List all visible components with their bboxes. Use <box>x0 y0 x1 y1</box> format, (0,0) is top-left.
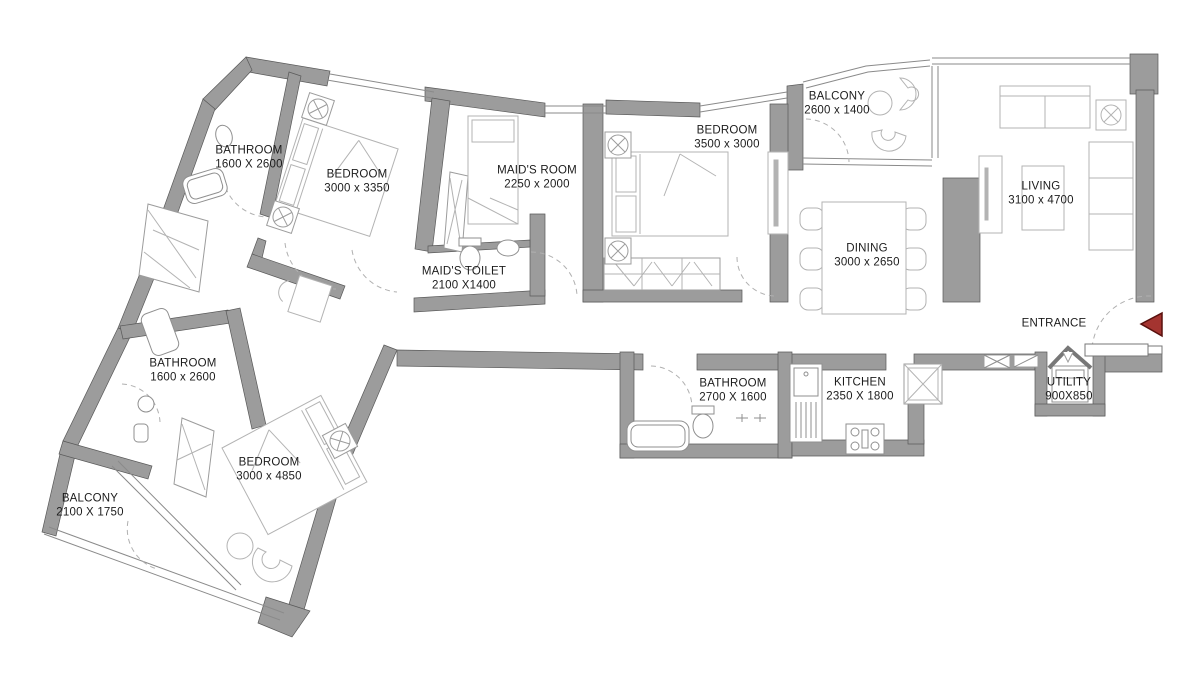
room-label-bedroom-2: BEDROOM 3500 x 3000 <box>694 125 760 152</box>
bathtub-icon-bathroom-3 <box>139 307 180 358</box>
room-label-maids-toilet: MAID'S TOILET 2100 X1400 <box>422 266 506 293</box>
utility-door-notch <box>1063 352 1073 362</box>
bedroom-2-door-arc <box>737 257 775 296</box>
dresser-icon-bedroom-2 <box>768 152 788 234</box>
balcony-chair-icon-2 <box>872 130 906 151</box>
stove-icon-kitchen <box>846 424 884 454</box>
room-label-balcony-1: BALCONY 2600 x 1400 <box>804 91 870 118</box>
entrance-label: ENTRANCE <box>1022 317 1087 331</box>
side-table-icon-living <box>1096 100 1126 130</box>
kitchen-counter-icon <box>790 364 822 442</box>
wardrobe-bedroom-3 <box>174 418 214 497</box>
light-symbol <box>605 238 631 264</box>
balcony-1-door-arc <box>806 119 849 162</box>
sink-icon-maids-toilet <box>497 240 519 256</box>
room-label-bedroom-1: BEDROOM 3000 x 3350 <box>324 169 390 196</box>
entrance-door-arc <box>1092 296 1151 348</box>
kitchen-shaft <box>904 364 942 404</box>
bathroom-1-door-arc <box>223 179 266 217</box>
room-label-living: LIVING 3100 x 4700 <box>1008 181 1074 208</box>
sofa-icon-living <box>1000 86 1090 128</box>
wall-grille-1 <box>984 355 1010 368</box>
balcony-chair-icon-1 <box>900 78 919 110</box>
room-label-dining: DINING 3000 x 2650 <box>834 243 900 270</box>
sink-icon-bathroom-2 <box>736 414 766 422</box>
sink-icon-bathroom-3 <box>134 396 154 442</box>
bathroom-2-door-arc <box>651 366 692 407</box>
floor-plan: BATHROOM 1600 X 2600 BEDROOM 3000 x 3350… <box>0 0 1189 696</box>
room-label-maids-room: MAID'S ROOM 2250 x 2000 <box>497 165 577 192</box>
bedroom-1-door-arc <box>352 250 397 292</box>
walls <box>42 54 1162 637</box>
room-label-balcony-2: BALCONY 2100 X 1750 <box>56 493 123 520</box>
floor-plan-drawing <box>0 0 1189 696</box>
room-label-bedroom-3: BEDROOM 3000 x 4850 <box>236 457 302 484</box>
entrance-step <box>1148 346 1162 354</box>
entrance-door-leaf <box>1085 344 1148 356</box>
balcony-2-door-arc <box>127 521 157 569</box>
wall-grille-2 <box>1014 355 1038 367</box>
bed-icon-bedroom-2 <box>612 152 728 236</box>
room-label-utility: UTILITY 900X850 <box>1045 377 1092 404</box>
toilet-icon-bathroom-2 <box>692 406 714 438</box>
room-label-bathroom-1: BATHROOM 1600 X 2600 <box>215 145 282 172</box>
shelf-icon-living <box>1089 142 1133 250</box>
entrance-arrow-icon <box>1141 313 1162 336</box>
room-label-kitchen: KITCHEN 2350 X 1800 <box>826 377 893 404</box>
bathtub-icon-bathroom-2 <box>627 421 689 451</box>
balcony-table-icon <box>868 91 892 115</box>
armchair-icon-bedroom-3 <box>227 533 292 582</box>
tv-unit-icon-living <box>979 156 1002 233</box>
room-label-bathroom-2: BATHROOM 2700 X 1600 <box>699 378 766 405</box>
room-label-bathroom-3: BATHROOM 1600 x 2600 <box>149 358 216 385</box>
light-symbol <box>605 132 631 158</box>
